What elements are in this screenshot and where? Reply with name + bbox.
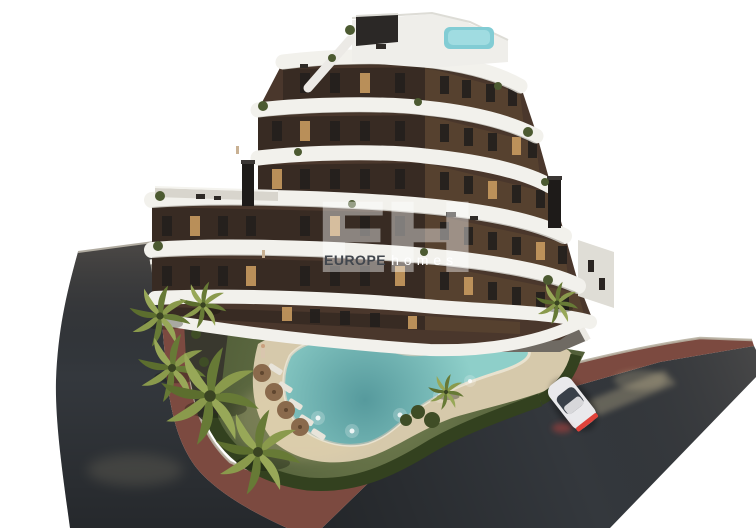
stair-bulkhead: [356, 14, 398, 46]
roof-plant: [345, 25, 355, 35]
headlight-glow: [614, 370, 666, 390]
scene: [0, 0, 756, 528]
taillight-glow: [552, 423, 572, 433]
rooftop-pool-water: [448, 30, 490, 45]
pool-person: [261, 344, 265, 358]
render-image: EH EUROPEhomes: [0, 0, 756, 528]
end-wall: [578, 240, 614, 308]
street-light-pool: [87, 454, 183, 486]
